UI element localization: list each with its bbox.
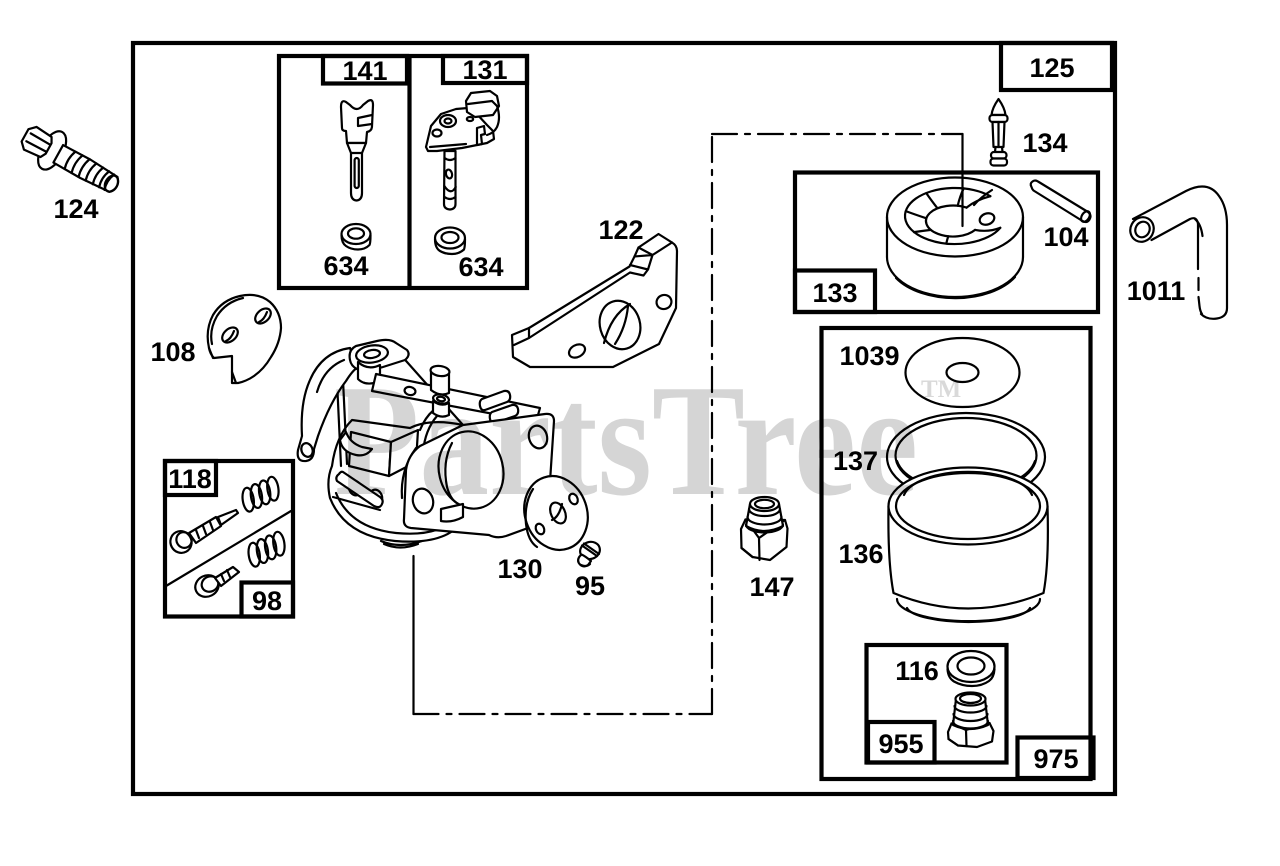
svg-text:TM: TM xyxy=(921,376,961,403)
svg-text:122: 122 xyxy=(598,215,643,245)
svg-text:975: 975 xyxy=(1033,744,1078,774)
svg-text:130: 130 xyxy=(497,554,542,584)
svg-text:108: 108 xyxy=(150,337,195,367)
svg-text:1011: 1011 xyxy=(1127,276,1186,306)
svg-text:124: 124 xyxy=(53,194,98,224)
svg-text:634: 634 xyxy=(323,251,368,281)
svg-text:95: 95 xyxy=(575,571,605,601)
svg-text:133: 133 xyxy=(812,278,857,308)
svg-text:104: 104 xyxy=(1043,222,1088,252)
svg-text:634: 634 xyxy=(458,252,503,282)
svg-text:118: 118 xyxy=(168,464,212,494)
svg-text:98: 98 xyxy=(252,586,282,616)
svg-text:147: 147 xyxy=(749,572,794,602)
svg-text:116: 116 xyxy=(895,656,939,686)
svg-text:125: 125 xyxy=(1029,53,1074,83)
svg-text:136: 136 xyxy=(838,539,883,569)
svg-text:141: 141 xyxy=(342,56,387,86)
svg-text:131: 131 xyxy=(462,55,507,85)
svg-text:PartsTree: PartsTree xyxy=(334,351,918,529)
svg-text:134: 134 xyxy=(1022,128,1067,158)
svg-text:955: 955 xyxy=(878,729,923,759)
